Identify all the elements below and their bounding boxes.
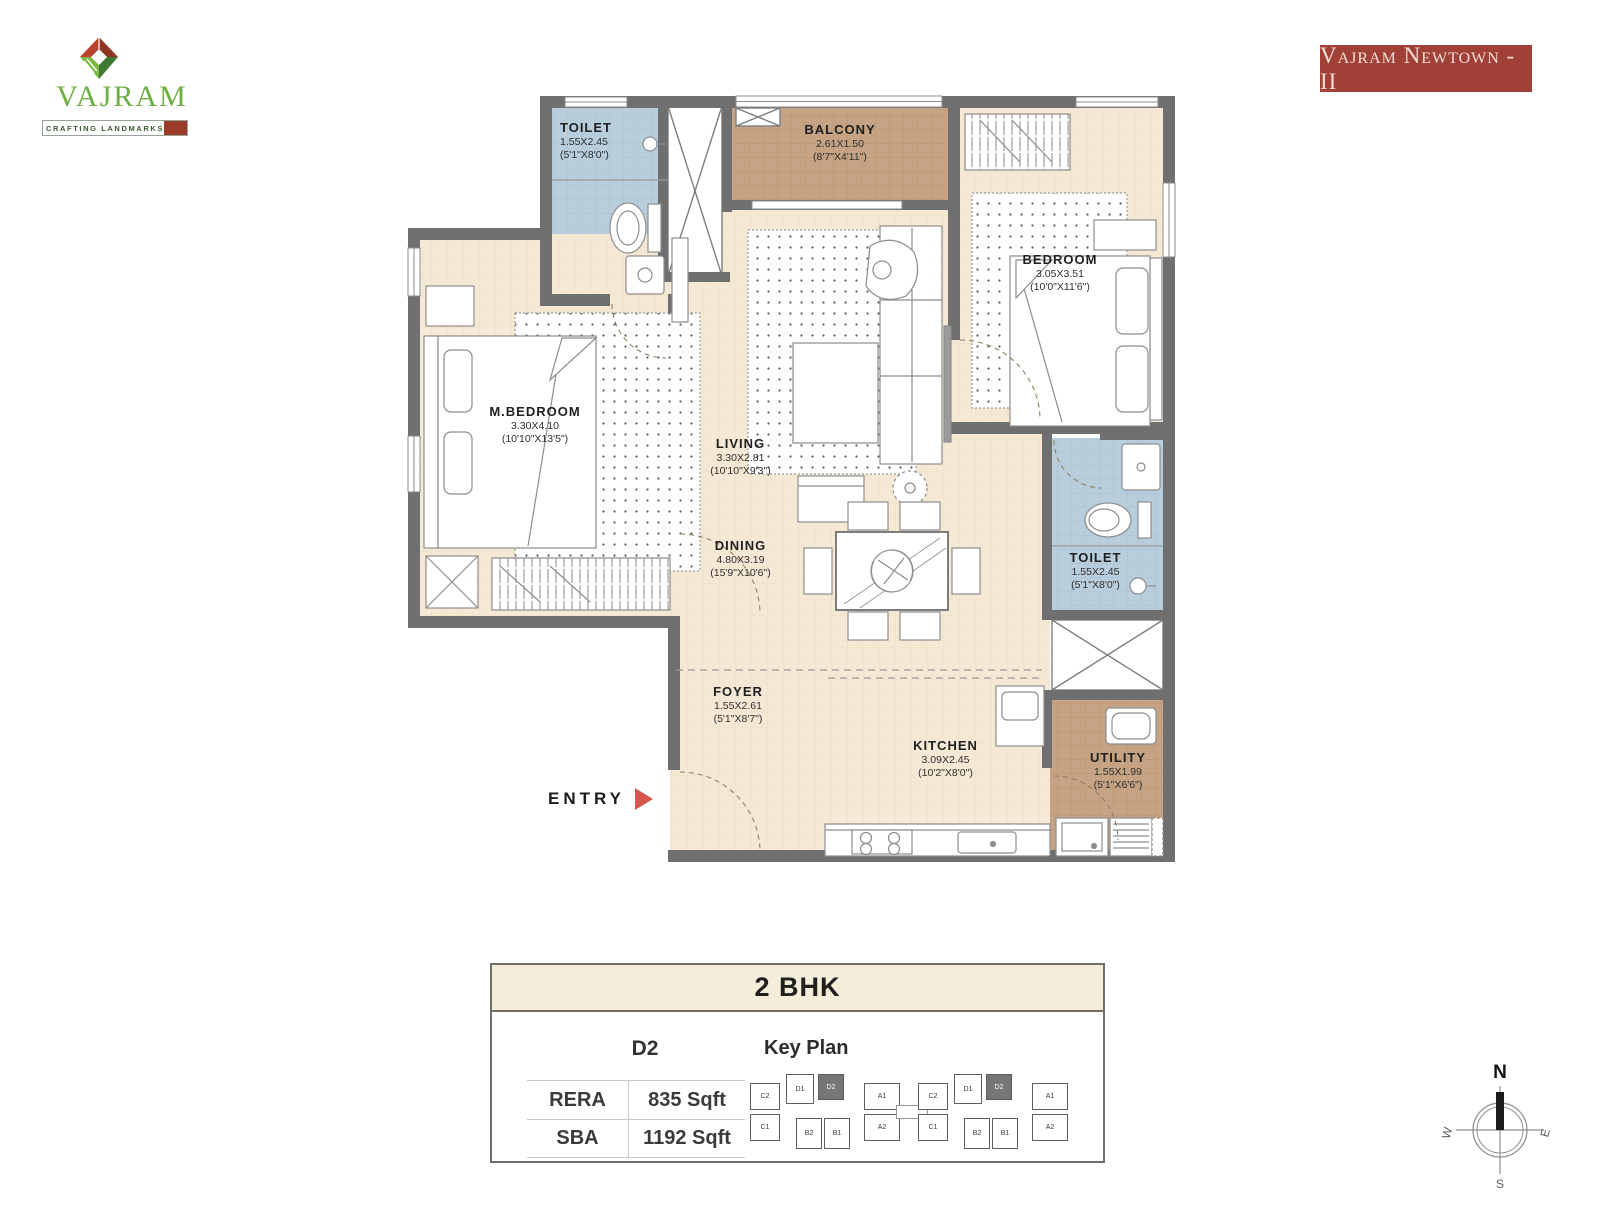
kitchen-sink: [958, 832, 1016, 853]
m-bedroom-wardrobe: [492, 558, 670, 610]
bed-headboard: [1150, 258, 1162, 420]
key-plan-unit: C1: [750, 1114, 780, 1141]
compass-south-label: S: [1496, 1177, 1504, 1191]
dining-chair: [848, 502, 888, 530]
entry-marker: ENTRY: [548, 788, 653, 810]
key-plan-unit: A1: [864, 1083, 900, 1110]
key-plan-unit: A1: [1032, 1083, 1068, 1110]
m-bedside-table: [426, 286, 474, 326]
key-plan-unit: A2: [864, 1114, 900, 1141]
unit-info-card: 2 BHK D2 RERA 835 Sqft SBA 1192 Sqft Key…: [490, 963, 1105, 1163]
bed-pillow: [1116, 268, 1148, 334]
logo-wordmark: VAJRAM: [42, 80, 202, 114]
coffee-table: [793, 343, 878, 443]
entry-arrow-icon: [635, 788, 653, 810]
console-table: [672, 238, 688, 322]
table-row: SBA 1192 Sqft: [527, 1119, 745, 1158]
floor-plan: TOILET 1.55X2.45 (5'1"X8'0") BALCONY 2.6…: [400, 88, 1180, 893]
bedside-table: [1094, 220, 1156, 250]
shower-icon: [643, 137, 657, 151]
key-plan-unit: C2: [918, 1083, 948, 1110]
m-bed-pillow: [444, 350, 472, 412]
vajram-logo: VAJRAM CRAFTING LANDMARKS: [40, 30, 210, 142]
page: { "brand": { "name": "VAJRAM", "tagline"…: [0, 0, 1600, 1211]
key-plan-wing: C2 C1 D1 D2 A1 A2 B2 B1: [750, 1071, 902, 1151]
key-plan-unit: C2: [750, 1083, 780, 1110]
balcony-slider: [752, 201, 902, 209]
key-plan-unit: A2: [1032, 1114, 1068, 1141]
dining-chair: [900, 502, 940, 530]
area-row-label: SBA: [527, 1120, 629, 1157]
project-title: Vajram Newtown - II: [1320, 43, 1532, 95]
logo-tagline-bar: CRAFTING LANDMARKS: [42, 120, 188, 136]
logo-red-block: [164, 121, 187, 135]
m-bed-pillow: [444, 432, 472, 494]
wc-1-cistern: [648, 204, 661, 252]
unit-type-title: 2 BHK: [754, 972, 840, 1003]
entry-label: ENTRY: [548, 789, 625, 809]
compass-rose: N S W E: [1438, 1052, 1562, 1192]
dining-chair: [900, 612, 940, 640]
unit-number: D2: [600, 1037, 690, 1061]
key-plan-unit: B1: [824, 1118, 850, 1149]
key-plan-unit: B2: [796, 1118, 822, 1149]
compass-east-label: E: [1537, 1127, 1553, 1138]
m-bed-headboard: [424, 336, 438, 548]
area-table: RERA 835 Sqft SBA 1192 Sqft: [527, 1080, 745, 1158]
bedroom-wardrobe: [965, 114, 1070, 170]
compass-needle: [1496, 1092, 1504, 1130]
wc-2-cistern: [1138, 502, 1151, 538]
key-plan-unit: D1: [954, 1074, 982, 1104]
key-plan-wing: C2 C1 D1 D2 A1 A2 B2 B1: [918, 1071, 1070, 1151]
washbasin-2: [1130, 578, 1146, 594]
compass-west-label: W: [1439, 1125, 1456, 1140]
utility-ledge: [1152, 818, 1163, 856]
key-plan-unit: B2: [964, 1118, 990, 1149]
project-banner: Vajram Newtown - II: [1320, 45, 1532, 92]
key-plan: C2 C1 D1 D2 A1 A2 B2 B1 C2 C1 D1 D2 A1 A…: [750, 1071, 1080, 1155]
dining-chair: [804, 548, 832, 594]
logo-diamond-icon: [78, 36, 120, 82]
key-plan-unit-highlighted: D2: [818, 1074, 844, 1100]
area-row-value: 835 Sqft: [629, 1081, 745, 1119]
key-plan-title: Key Plan: [764, 1037, 848, 1060]
compass-icon: N S W E: [1438, 1052, 1562, 1192]
area-row-label: RERA: [527, 1081, 629, 1119]
floor-plan-drawing: [400, 88, 1180, 893]
tv-panel: [944, 326, 951, 442]
key-plan-unit: B1: [992, 1118, 1018, 1149]
key-plan-unit-highlighted: D2: [986, 1074, 1012, 1100]
dining-chair: [848, 612, 888, 640]
unit-type-header: 2 BHK: [492, 965, 1103, 1012]
logo-tagline: CRAFTING LANDMARKS: [43, 124, 164, 133]
compass-north-label: N: [1493, 1062, 1507, 1083]
table-row: RERA 835 Sqft: [527, 1080, 745, 1119]
key-plan-unit: D1: [786, 1074, 814, 1104]
area-row-value: 1192 Sqft: [629, 1120, 745, 1157]
dining-chair: [952, 548, 980, 594]
key-plan-unit: C1: [918, 1114, 948, 1141]
fridge-inner: [1002, 692, 1038, 720]
bed-pillow: [1116, 346, 1148, 412]
